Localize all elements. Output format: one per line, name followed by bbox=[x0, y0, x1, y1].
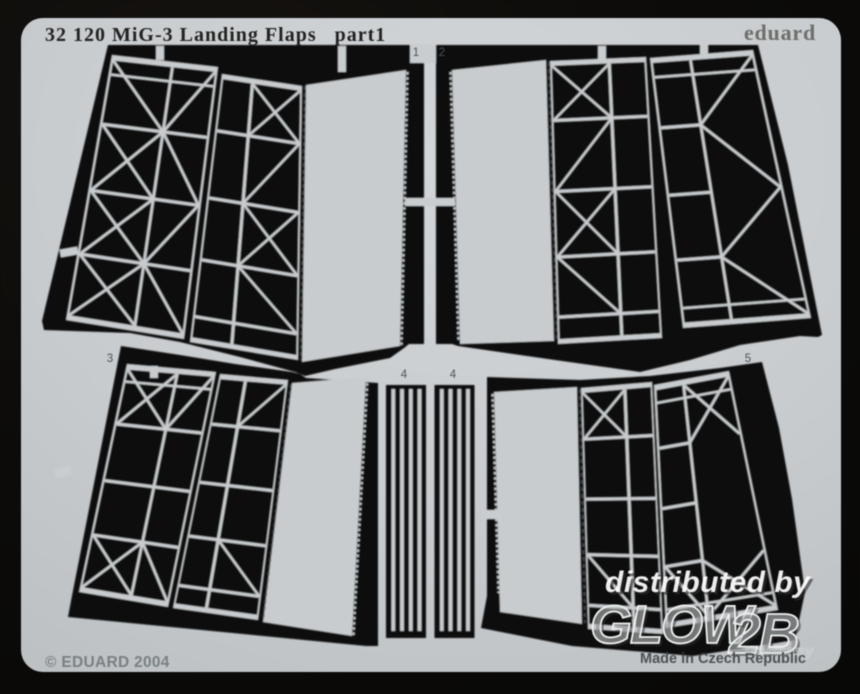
svg-text:32 120 MiG-3 Landing Flaps: 32 120 MiG-3 Landing Flaps part1 bbox=[45, 24, 386, 46]
svg-text:3: 3 bbox=[107, 353, 113, 365]
svg-text:4: 4 bbox=[450, 369, 457, 381]
svg-text:1: 1 bbox=[413, 47, 419, 59]
svg-text:2: 2 bbox=[439, 47, 445, 59]
svg-text:Made in Czech Republic: Made in Czech Republic bbox=[640, 651, 806, 667]
svg-text:© EDUARD 2004: © EDUARD 2004 bbox=[45, 654, 170, 671]
svg-text:5: 5 bbox=[745, 353, 751, 365]
svg-text:4: 4 bbox=[401, 369, 408, 381]
svg-text:eduard: eduard bbox=[744, 20, 816, 45]
